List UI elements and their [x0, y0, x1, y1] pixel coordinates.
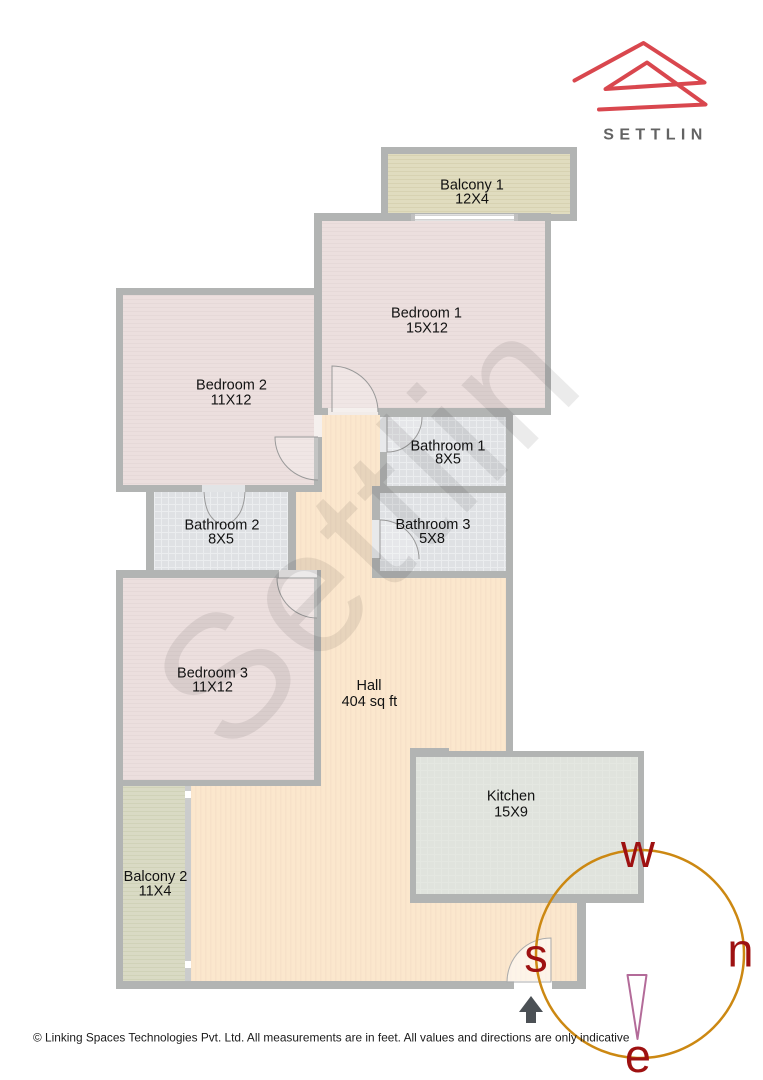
svg-text:© Linking Spaces Technologies: © Linking Spaces Technologies Pvt. Ltd. …: [33, 1031, 630, 1045]
svg-text:5X8: 5X8: [419, 531, 445, 547]
svg-text:Hall: Hall: [357, 678, 382, 694]
svg-text:Bedroom 2: Bedroom 2: [196, 378, 267, 394]
svg-text:11X4: 11X4: [139, 884, 172, 900]
svg-text:w: w: [620, 824, 656, 877]
svg-text:8X5: 8X5: [435, 452, 461, 468]
svg-text:SETTLIN: SETTLIN: [603, 127, 707, 144]
svg-text:11X12: 11X12: [192, 680, 233, 696]
svg-text:12X4: 12X4: [455, 192, 489, 208]
svg-text:15X9: 15X9: [494, 804, 528, 820]
svg-text:n: n: [727, 924, 753, 977]
svg-text:11X12: 11X12: [211, 392, 252, 408]
svg-text:Kitchen: Kitchen: [487, 789, 535, 805]
svg-text:404 sq ft: 404 sq ft: [342, 694, 398, 710]
svg-text:15X12: 15X12: [406, 321, 448, 337]
svg-text:s: s: [524, 929, 548, 982]
svg-text:Bedroom 1: Bedroom 1: [391, 306, 462, 322]
svg-text:8X5: 8X5: [208, 531, 234, 547]
